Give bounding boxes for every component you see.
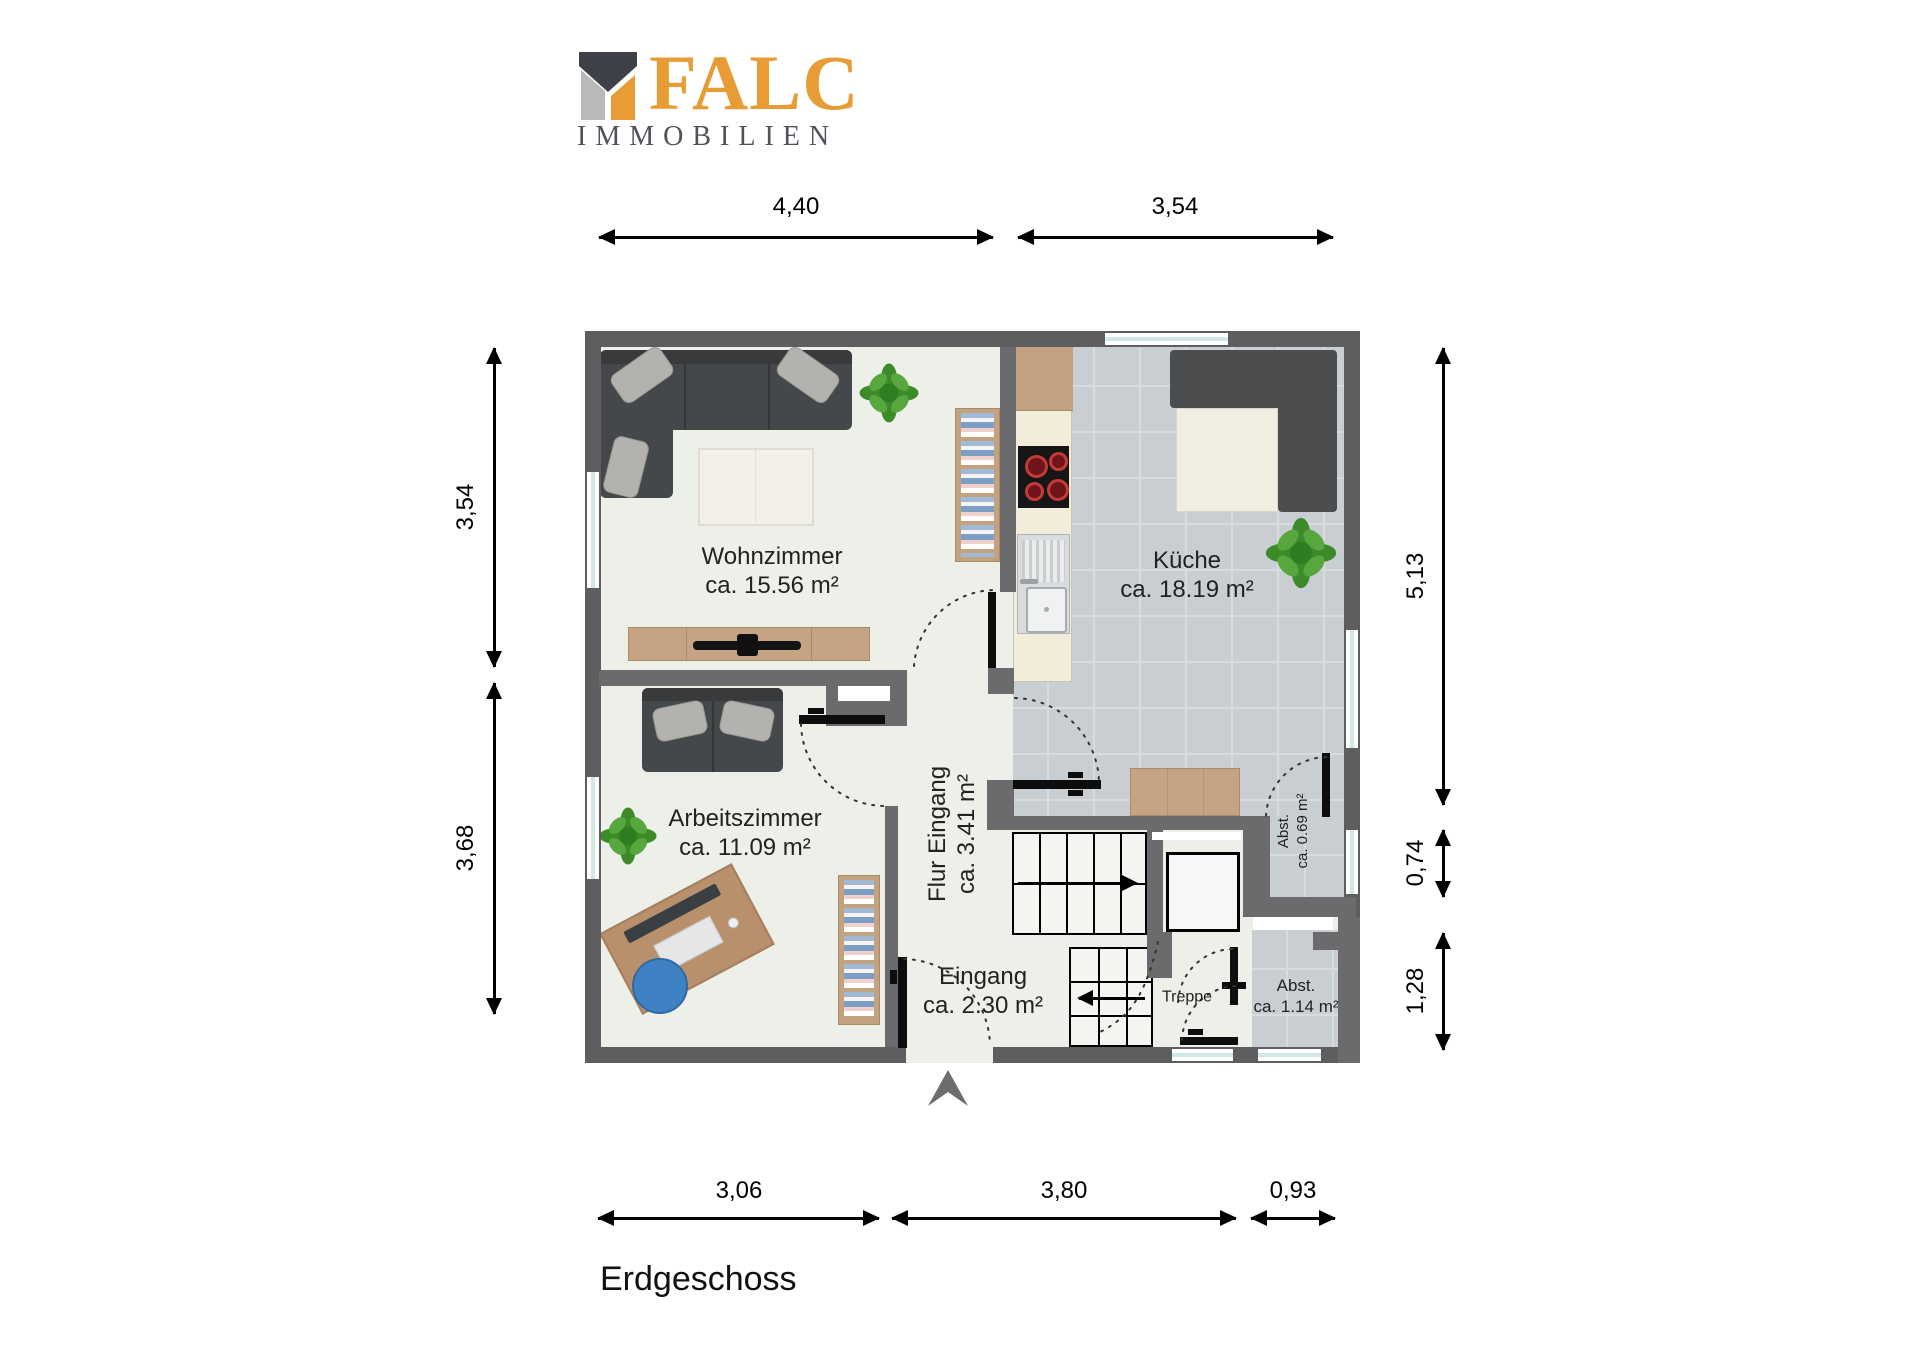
room-name: Flur Eingang bbox=[923, 766, 952, 902]
room-label-abst-gross: Abst. ca. 1.14 m² bbox=[1253, 975, 1338, 1017]
dim-line-left-2 bbox=[493, 683, 496, 1014]
dim-label-left-1: 3,54 bbox=[452, 484, 480, 531]
room-name: Arbeitszimmer bbox=[668, 804, 821, 833]
dim-line-bottom-1 bbox=[598, 1217, 879, 1220]
dim-label-bottom-2: 3,80 bbox=[1041, 1177, 1088, 1205]
room-area: ca. 11.09 m² bbox=[668, 833, 821, 862]
room-label-eingang: Eingang ca. 2.30 m² bbox=[923, 962, 1043, 1020]
room-area: ca. 18.19 m² bbox=[1120, 575, 1253, 604]
room-label-wohnzimmer: Wohnzimmer ca. 15.56 m² bbox=[702, 542, 843, 600]
room-name: Küche bbox=[1120, 546, 1253, 575]
dim-label-right-3: 1,28 bbox=[1402, 968, 1430, 1015]
dim-label-right-1: 5,13 bbox=[1402, 553, 1430, 600]
room-name: Treppe bbox=[1162, 988, 1212, 1007]
room-area: ca. 3.41 m² bbox=[952, 766, 981, 902]
entrance-arrow-icon bbox=[928, 1070, 968, 1106]
room-label-abst-klein: Abst. ca. 0.69 m² bbox=[1274, 793, 1312, 868]
dim-label-top-1: 4,40 bbox=[773, 193, 820, 221]
door-swing-arcs bbox=[0, 0, 1920, 1357]
arc-living-door bbox=[914, 590, 996, 666]
dim-label-right-2: 0,74 bbox=[1402, 840, 1430, 887]
dim-line-right-2 bbox=[1442, 830, 1445, 897]
room-name: Abst. bbox=[1253, 975, 1338, 996]
stair-walk-line bbox=[1100, 942, 1158, 1032]
dim-line-right-3 bbox=[1442, 933, 1445, 1050]
dim-label-bottom-1: 3,06 bbox=[716, 1177, 763, 1205]
room-name: Wohnzimmer bbox=[702, 542, 843, 571]
dim-label-top-2: 3,54 bbox=[1152, 193, 1199, 221]
room-label-arbeitszimmer: Arbeitszimmer ca. 11.09 m² bbox=[668, 804, 821, 862]
room-area: ca. 1.14 m² bbox=[1253, 996, 1338, 1017]
floor-title: Erdgeschoss bbox=[600, 1260, 797, 1299]
dim-line-bottom-3 bbox=[1251, 1217, 1335, 1220]
room-label-treppe: Treppe bbox=[1162, 988, 1212, 1007]
room-name: Eingang bbox=[923, 962, 1043, 991]
room-area: ca. 2.30 m² bbox=[923, 991, 1043, 1020]
arc-office-door bbox=[801, 724, 885, 806]
room-area: ca. 15.56 m² bbox=[702, 571, 843, 600]
dim-line-left-1 bbox=[493, 348, 496, 667]
dim-line-bottom-2 bbox=[892, 1217, 1236, 1220]
dim-line-top-2 bbox=[1018, 236, 1333, 239]
dim-label-left-2: 3,68 bbox=[452, 825, 480, 872]
dim-label-bottom-3: 0,93 bbox=[1270, 1177, 1317, 1205]
room-label-flur: Flur Eingang ca. 3.41 m² bbox=[923, 766, 981, 902]
dim-line-right-1 bbox=[1442, 348, 1445, 805]
room-name: Abst. bbox=[1274, 793, 1293, 868]
floorplan-page: FALC IMMOBILIEN bbox=[0, 0, 1920, 1357]
room-area: ca. 0.69 m² bbox=[1293, 793, 1312, 868]
arc-kitchen-door bbox=[1015, 698, 1099, 782]
room-label-kueche: Küche ca. 18.19 m² bbox=[1120, 546, 1253, 604]
dim-line-top-1 bbox=[599, 236, 993, 239]
